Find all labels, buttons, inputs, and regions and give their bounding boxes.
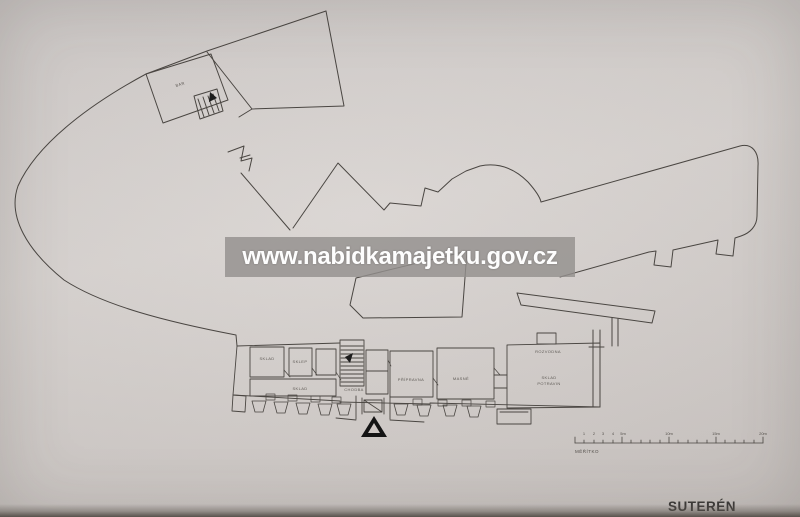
photographed-floor-plan: BAR SKLAD SKLEP SKLAD CHODBA PŘÍPRAVNA M…	[0, 0, 800, 517]
scale-tick-label: 20m	[759, 431, 767, 436]
entrance	[336, 396, 424, 422]
scale-tick-label: 15m	[712, 431, 720, 436]
scale-caption: MĚŘÍTKO	[575, 447, 599, 454]
room-label: MASNÉ	[453, 376, 469, 381]
scale-tick-label: 1	[583, 431, 586, 436]
room-label: PŘÍPRAVNA	[398, 377, 424, 382]
room-label: CHODBA	[344, 387, 364, 392]
room-label: SKLAD	[292, 386, 307, 391]
watermark-text: www.nabidkamajetku.gov.cz	[242, 243, 557, 271]
terrain-zigzag-lines	[228, 146, 541, 230]
room-label: ROZVODNA	[535, 349, 561, 354]
bar-label: BAR	[175, 80, 185, 88]
scale-tick-label: 4	[612, 431, 615, 436]
room-label: SKLEP	[293, 359, 308, 364]
site-boundary-outline	[15, 11, 344, 346]
scale-tick-label: 3	[602, 431, 605, 436]
scale-tick-label: 10m	[665, 431, 673, 436]
staircase-block	[340, 340, 364, 386]
room-label: SKLAD	[541, 375, 556, 380]
room-label: POTRAVIN	[537, 381, 560, 386]
scale-bar	[575, 437, 763, 443]
scale-tick-label: 2	[593, 431, 596, 436]
room-label: SKLAD	[259, 356, 274, 361]
scale-labels: 1 2 3 4 5m 10m 15m 20m MĚŘÍTKO	[575, 431, 768, 454]
page-title: SUTERÉN	[668, 499, 736, 514]
bar-building-outline	[146, 54, 228, 123]
scale-tick-label: 5m	[620, 431, 626, 436]
watermark-band: www.nabidkamajetku.gov.cz	[225, 237, 575, 277]
